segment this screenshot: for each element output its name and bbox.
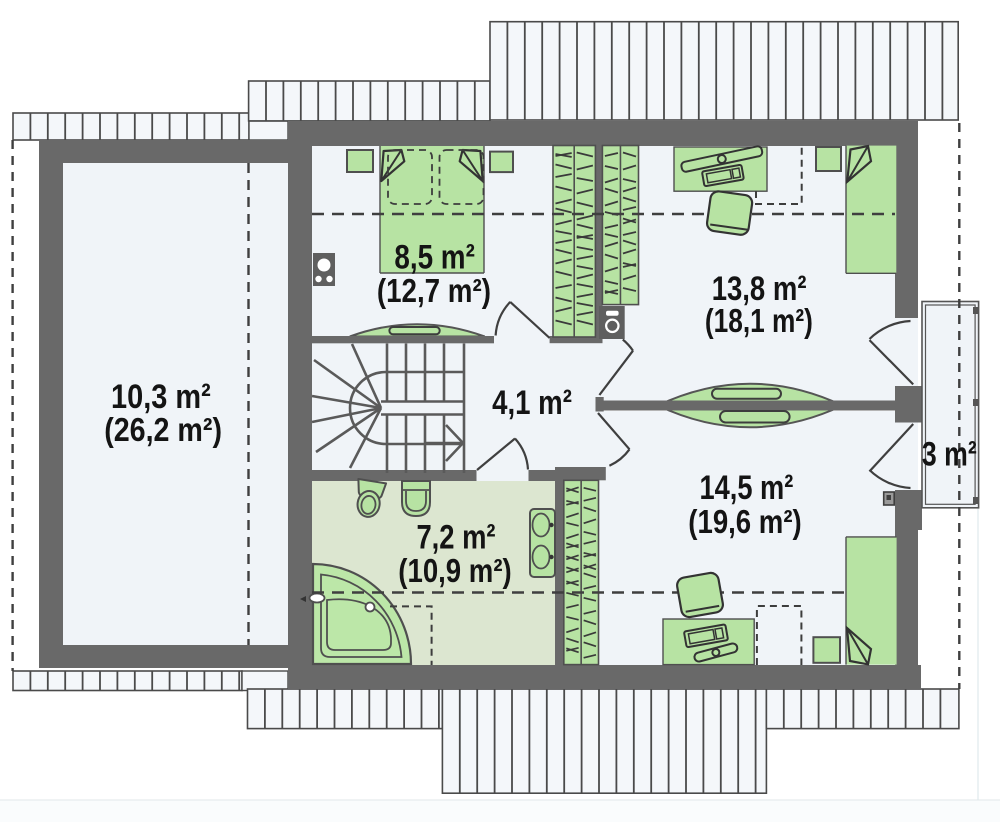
svg-text:(10,9 m²): (10,9 m²)	[398, 552, 511, 589]
svg-text:14,5 m²: 14,5 m²	[700, 469, 794, 507]
svg-text:8,5 m²: 8,5 m²	[394, 239, 475, 277]
svg-text:(19,6 m²): (19,6 m²)	[688, 503, 801, 540]
svg-text:4,1 m²: 4,1 m²	[492, 384, 572, 422]
svg-text:(18,1 m²): (18,1 m²)	[705, 302, 813, 339]
svg-text:(26,2 m²): (26,2 m²)	[104, 411, 222, 448]
svg-text:3 m²: 3 m²	[922, 436, 977, 474]
svg-text:7,2 m²: 7,2 m²	[416, 519, 495, 557]
svg-text:(12,7 m²): (12,7 m²)	[377, 272, 491, 309]
